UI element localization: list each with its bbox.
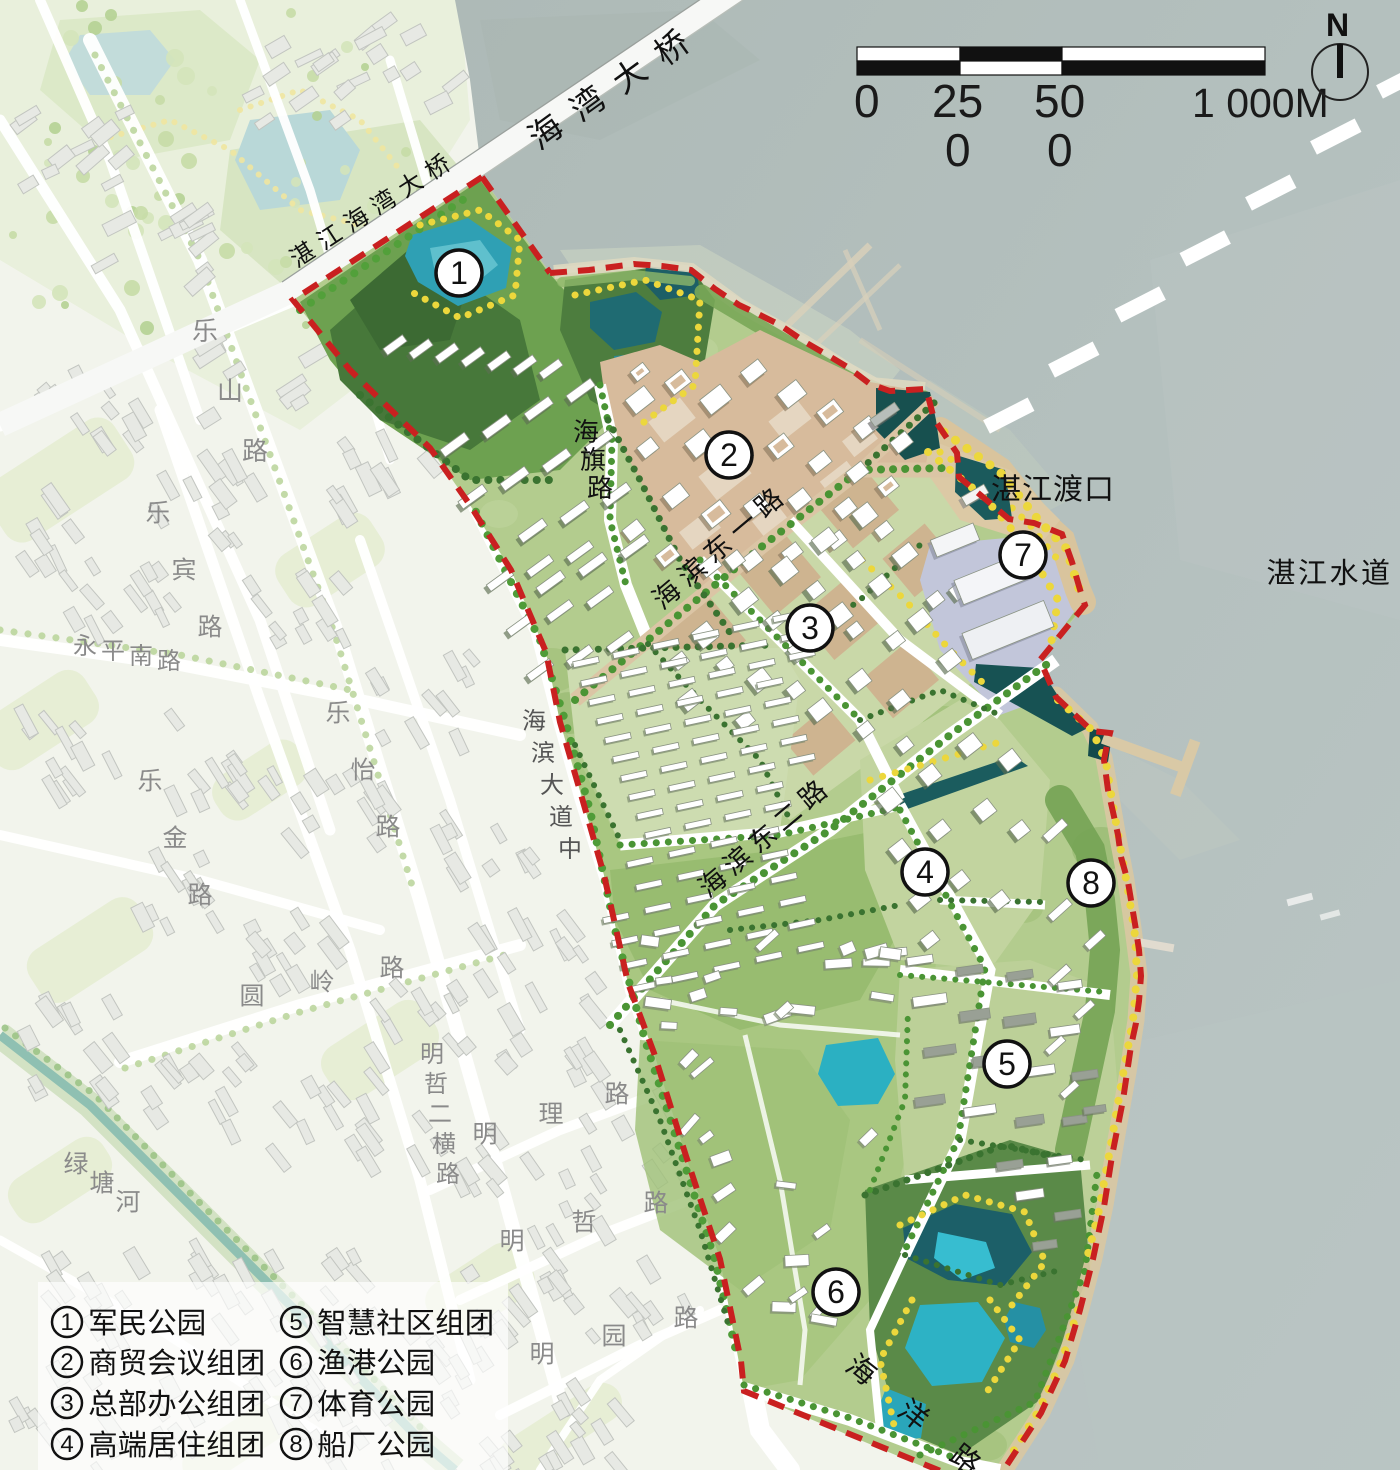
svg-text:2: 2	[60, 1349, 73, 1376]
svg-text:2: 2	[720, 437, 738, 473]
svg-text:0: 0	[854, 75, 880, 127]
svg-text:8: 8	[289, 1431, 302, 1458]
svg-text:3: 3	[801, 610, 819, 646]
svg-text:1: 1	[60, 1309, 73, 1336]
svg-text:25: 25	[932, 75, 983, 127]
svg-text:7: 7	[1014, 537, 1032, 573]
svg-text:7: 7	[289, 1390, 302, 1417]
svg-text:4: 4	[60, 1431, 73, 1458]
svg-text:1: 1	[450, 255, 468, 291]
svg-text:0: 0	[945, 124, 971, 176]
svg-text:8: 8	[1082, 865, 1100, 901]
svg-text:5: 5	[289, 1309, 302, 1336]
svg-text:6: 6	[827, 1274, 845, 1310]
svg-text:3: 3	[60, 1390, 73, 1417]
svg-text:50: 50	[1034, 75, 1085, 127]
svg-text:N: N	[1326, 7, 1349, 43]
svg-text:5: 5	[998, 1046, 1016, 1082]
svg-text:6: 6	[289, 1349, 302, 1376]
svg-text:4: 4	[916, 854, 934, 890]
svg-text:0: 0	[1047, 124, 1073, 176]
svg-text:1 000M: 1 000M	[1192, 80, 1329, 126]
